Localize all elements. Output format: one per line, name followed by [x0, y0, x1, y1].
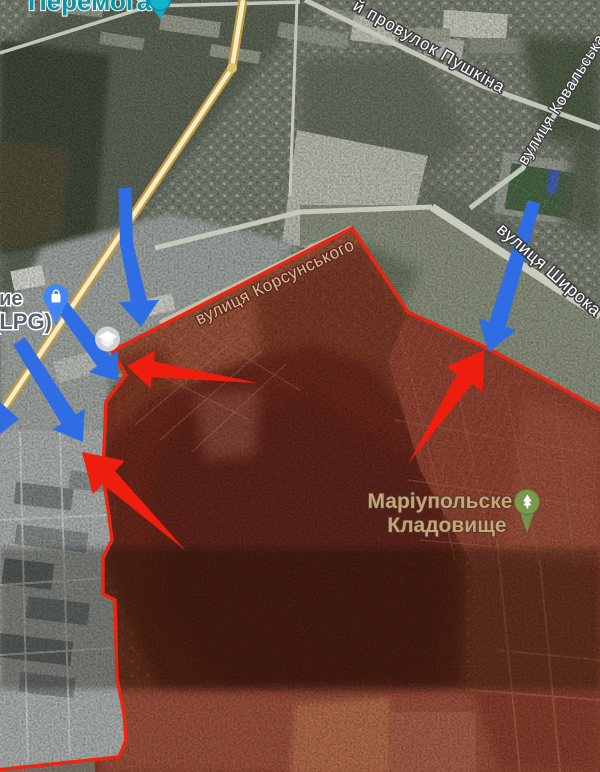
svg-text:Перемога: Перемога: [28, 0, 152, 16]
svg-text:Маріупольске: Маріупольске: [368, 490, 513, 513]
svg-text:ние: ние: [0, 288, 23, 310]
svg-text:Кладовище: Кладовище: [387, 514, 506, 537]
svg-text:(LPG): (LPG): [0, 309, 52, 334]
